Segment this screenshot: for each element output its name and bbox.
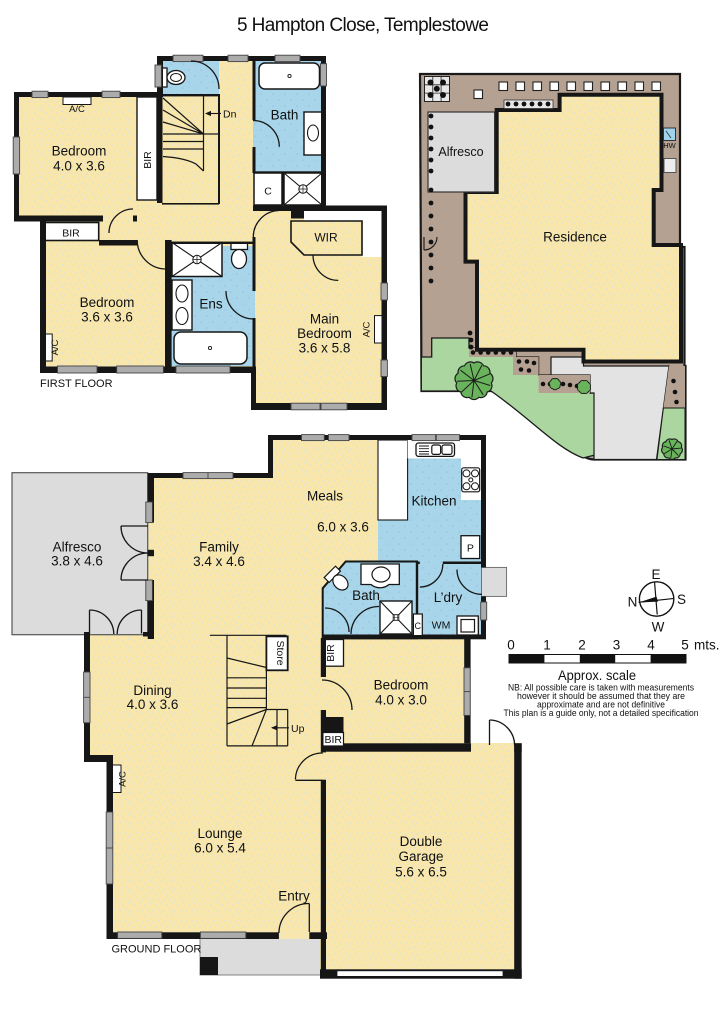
svg-text:2: 2	[578, 638, 586, 653]
svg-text:4: 4	[647, 638, 655, 653]
svg-text:6.0 x 5.4: 6.0 x 5.4	[194, 841, 246, 856]
svg-text:Double: Double	[400, 834, 443, 849]
svg-text:4.0 x 3.0: 4.0 x 3.0	[375, 693, 427, 708]
svg-text:5 Hampton Close, Templestowe: 5 Hampton Close, Templestowe	[237, 15, 489, 36]
svg-text:BIR: BIR	[142, 151, 154, 169]
svg-text:6.0 x 3.6: 6.0 x 3.6	[317, 520, 369, 535]
svg-text:Store: Store	[274, 640, 286, 665]
svg-text:3.6 x 5.8: 3.6 x 5.8	[299, 341, 351, 356]
svg-text:Bedroom: Bedroom	[374, 678, 429, 693]
svg-text:A/C: A/C	[50, 339, 61, 355]
svg-text:5: 5	[681, 638, 689, 653]
svg-text:Dining: Dining	[133, 683, 171, 698]
svg-text:Entry: Entry	[278, 889, 310, 904]
svg-text:L’dry: L’dry	[434, 590, 463, 605]
svg-text:WIR: WIR	[314, 231, 338, 245]
svg-text:Bedroom: Bedroom	[52, 144, 107, 159]
svg-text:P: P	[467, 543, 474, 555]
svg-text:A/C: A/C	[118, 771, 129, 787]
svg-text:Bedroom: Bedroom	[297, 326, 352, 341]
svg-text:This plan is a guide only, not: This plan is a guide only, not a detaile…	[504, 708, 699, 718]
svg-text:3.8 x 4.6: 3.8 x 4.6	[51, 554, 103, 569]
svg-text:Ens: Ens	[199, 297, 223, 312]
svg-text:Alfresco: Alfresco	[53, 540, 102, 555]
svg-text:FIRST FLOOR: FIRST FLOOR	[40, 378, 113, 390]
svg-text:GROUND FLOOR: GROUND FLOOR	[112, 944, 202, 956]
svg-text:3.4 x 4.6: 3.4 x 4.6	[193, 554, 245, 569]
svg-text:mts.: mts.	[694, 638, 720, 653]
svg-text:E: E	[651, 567, 660, 582]
svg-text:BIR: BIR	[325, 644, 337, 662]
svg-text:Kitchen: Kitchen	[411, 494, 456, 509]
svg-text:1: 1	[543, 638, 551, 653]
svg-text:Family: Family	[199, 540, 239, 555]
svg-text:Bedroom: Bedroom	[80, 295, 135, 310]
svg-text:S: S	[677, 592, 686, 607]
svg-text:4.0 x 3.6: 4.0 x 3.6	[127, 697, 179, 712]
svg-text:4.0 x 3.6: 4.0 x 3.6	[53, 159, 105, 174]
svg-text:Bath: Bath	[352, 588, 380, 603]
svg-text:BIR: BIR	[62, 228, 80, 240]
svg-text:Bath: Bath	[271, 108, 299, 123]
svg-text:3: 3	[613, 638, 621, 653]
svg-text:Up: Up	[291, 723, 305, 735]
svg-text:BIR: BIR	[324, 734, 342, 746]
svg-text:5.6 x 6.5: 5.6 x 6.5	[395, 865, 447, 880]
svg-text:Lounge: Lounge	[197, 826, 242, 841]
svg-text:C: C	[415, 621, 422, 631]
svg-text:C: C	[264, 186, 272, 198]
svg-text:Main: Main	[310, 312, 339, 327]
svg-text:Approx. scale: Approx. scale	[558, 668, 636, 683]
svg-text:Residence: Residence	[543, 230, 607, 245]
svg-text:Dn: Dn	[223, 109, 237, 121]
svg-text:3.6 x 3.6: 3.6 x 3.6	[81, 310, 133, 325]
svg-text:HW: HW	[663, 141, 676, 150]
svg-text:N: N	[628, 595, 638, 610]
svg-text:Meals: Meals	[307, 489, 343, 504]
svg-text:0: 0	[507, 638, 515, 653]
svg-text:Alfresco: Alfresco	[438, 145, 483, 159]
svg-text:A/C: A/C	[362, 321, 373, 337]
svg-text:Garage: Garage	[398, 849, 443, 864]
svg-text:WM: WM	[432, 620, 451, 632]
svg-text:W: W	[652, 620, 665, 635]
svg-text:A/C: A/C	[69, 104, 85, 115]
